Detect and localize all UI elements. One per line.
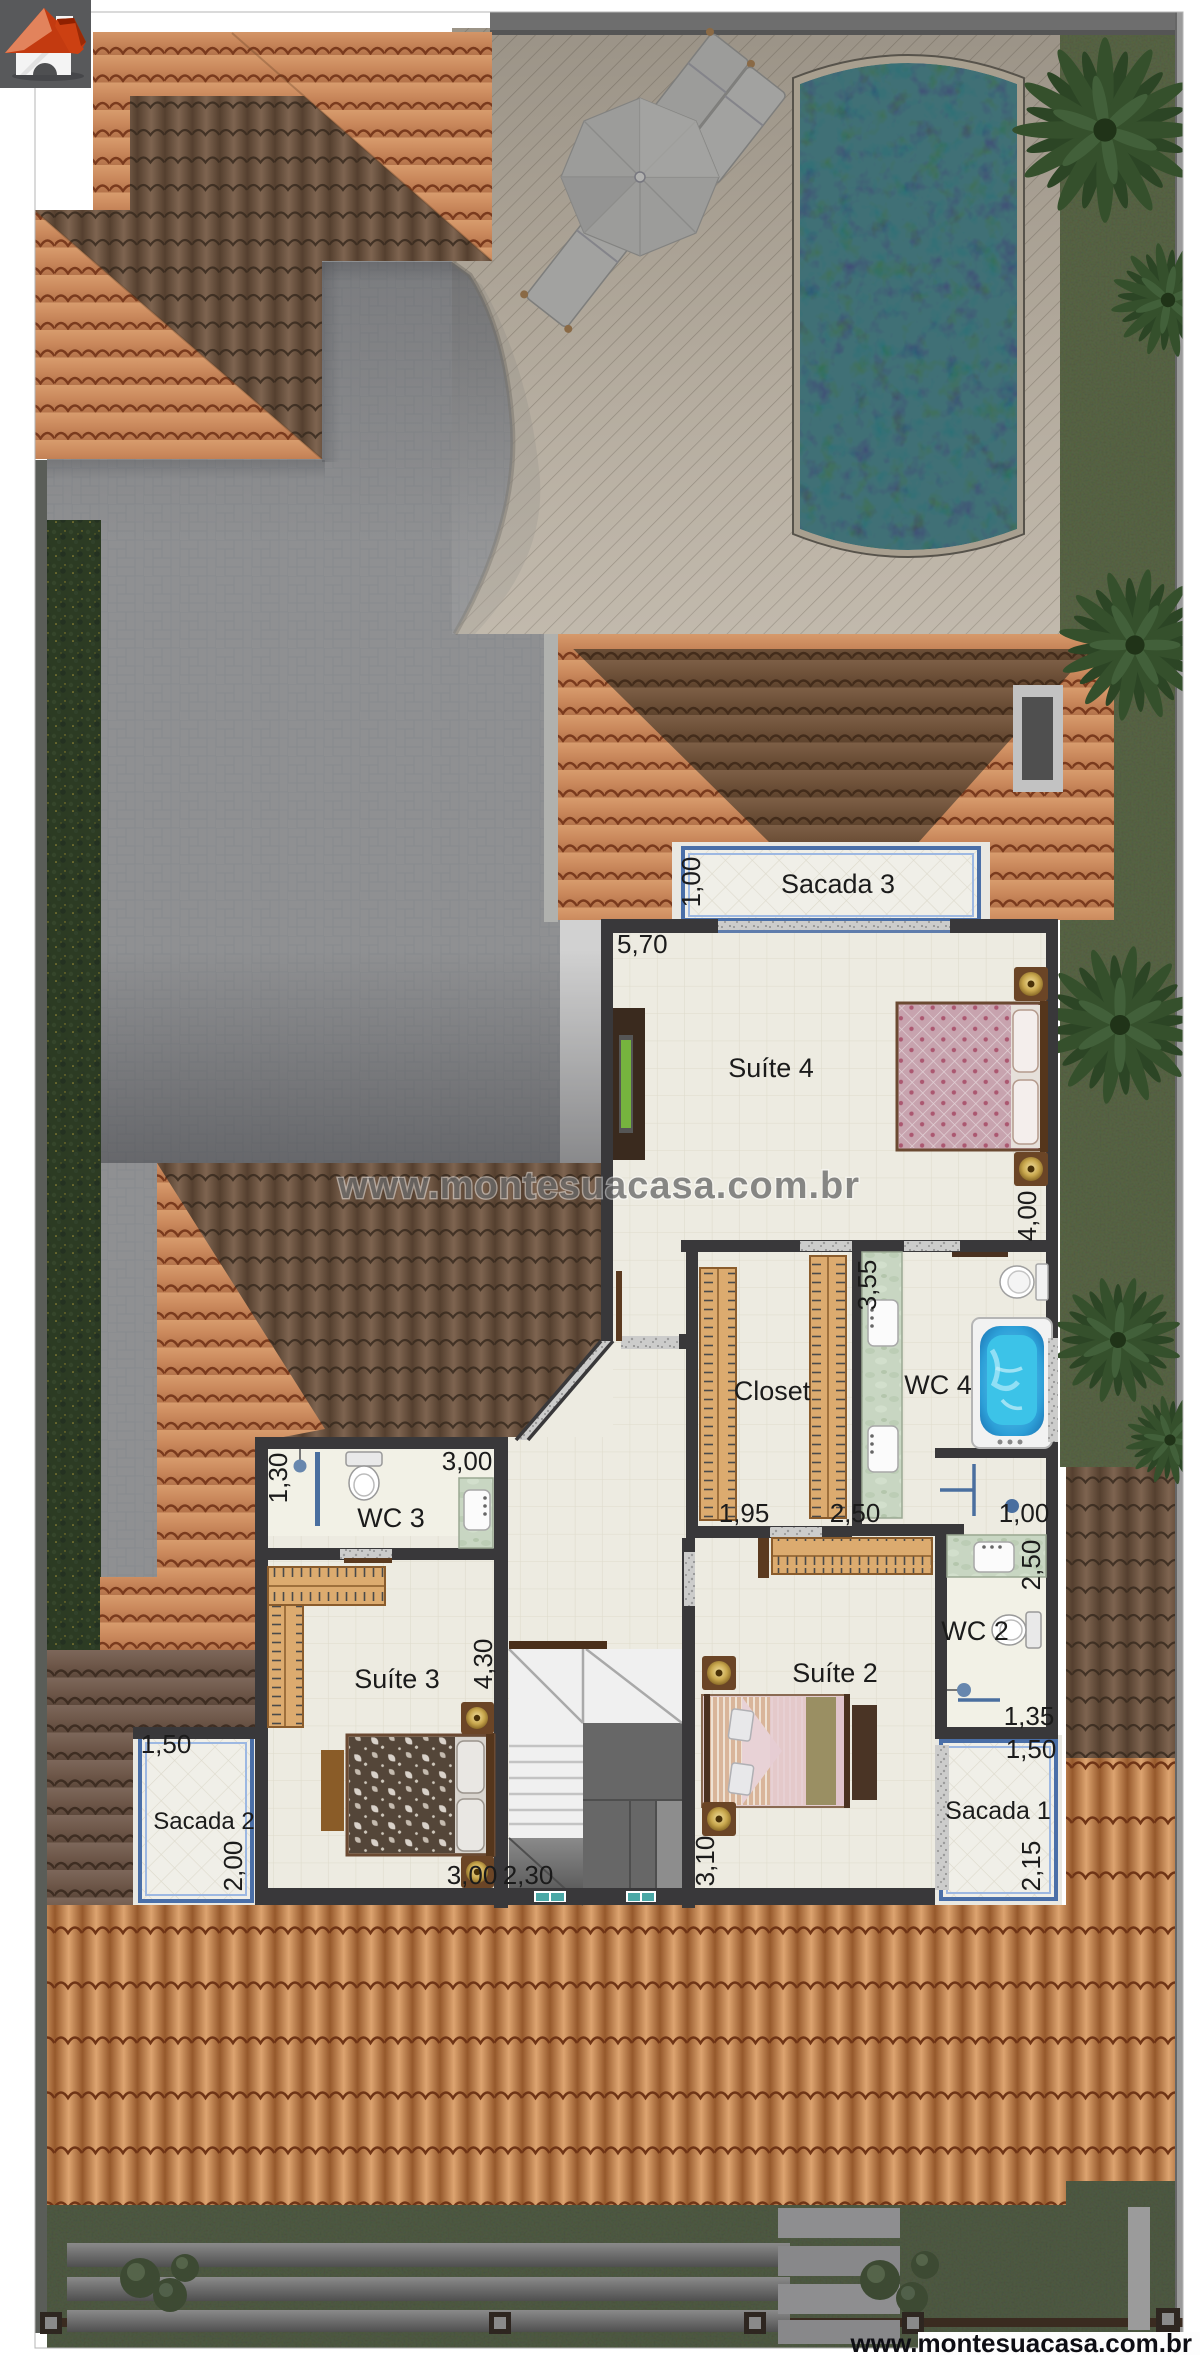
svg-text:Suíte 3: Suíte 3 [354, 1664, 440, 1694]
svg-text:1,50: 1,50 [141, 1729, 192, 1759]
svg-text:3,00: 3,00 [447, 1860, 498, 1890]
svg-text:2,50: 2,50 [830, 1498, 881, 1528]
svg-text:1,95: 1,95 [719, 1498, 770, 1528]
svg-text:2,00: 2,00 [218, 1841, 248, 1892]
svg-text:2,50: 2,50 [1016, 1540, 1046, 1591]
svg-text:www.montesuacasa.com.br: www.montesuacasa.com.br [850, 2328, 1192, 2355]
svg-text:1,00: 1,00 [676, 857, 706, 908]
svg-text:4,00: 4,00 [1012, 1191, 1042, 1242]
svg-text:Suíte 4: Suíte 4 [728, 1053, 814, 1083]
svg-text:WC 4: WC 4 [904, 1370, 972, 1400]
svg-text:WC 2: WC 2 [941, 1616, 1009, 1646]
svg-text:Sacada 3: Sacada 3 [781, 869, 895, 899]
svg-text:WC 3: WC 3 [357, 1503, 425, 1533]
svg-text:1,00: 1,00 [999, 1498, 1050, 1528]
svg-text:Closet: Closet [734, 1376, 811, 1406]
svg-text:4,30: 4,30 [468, 1639, 498, 1690]
svg-text:5,70: 5,70 [617, 929, 668, 959]
svg-text:3,00: 3,00 [442, 1446, 493, 1476]
svg-text:3,10: 3,10 [690, 1836, 720, 1887]
svg-text:1,35: 1,35 [1004, 1701, 1055, 1731]
svg-text:3,55: 3,55 [852, 1260, 882, 1311]
svg-text:Sacada 1: Sacada 1 [945, 1797, 1051, 1825]
svg-text:Suíte 2: Suíte 2 [792, 1658, 878, 1688]
svg-text:1,50: 1,50 [1006, 1734, 1057, 1764]
svg-text:1,30: 1,30 [263, 1453, 293, 1504]
svg-text:2,30: 2,30 [503, 1860, 554, 1890]
svg-text:2,15: 2,15 [1016, 1841, 1046, 1892]
svg-text:www.montesuacasa.com.br: www.montesuacasa.com.br [337, 1165, 860, 1207]
svg-text:Sacada 2: Sacada 2 [153, 1808, 254, 1835]
